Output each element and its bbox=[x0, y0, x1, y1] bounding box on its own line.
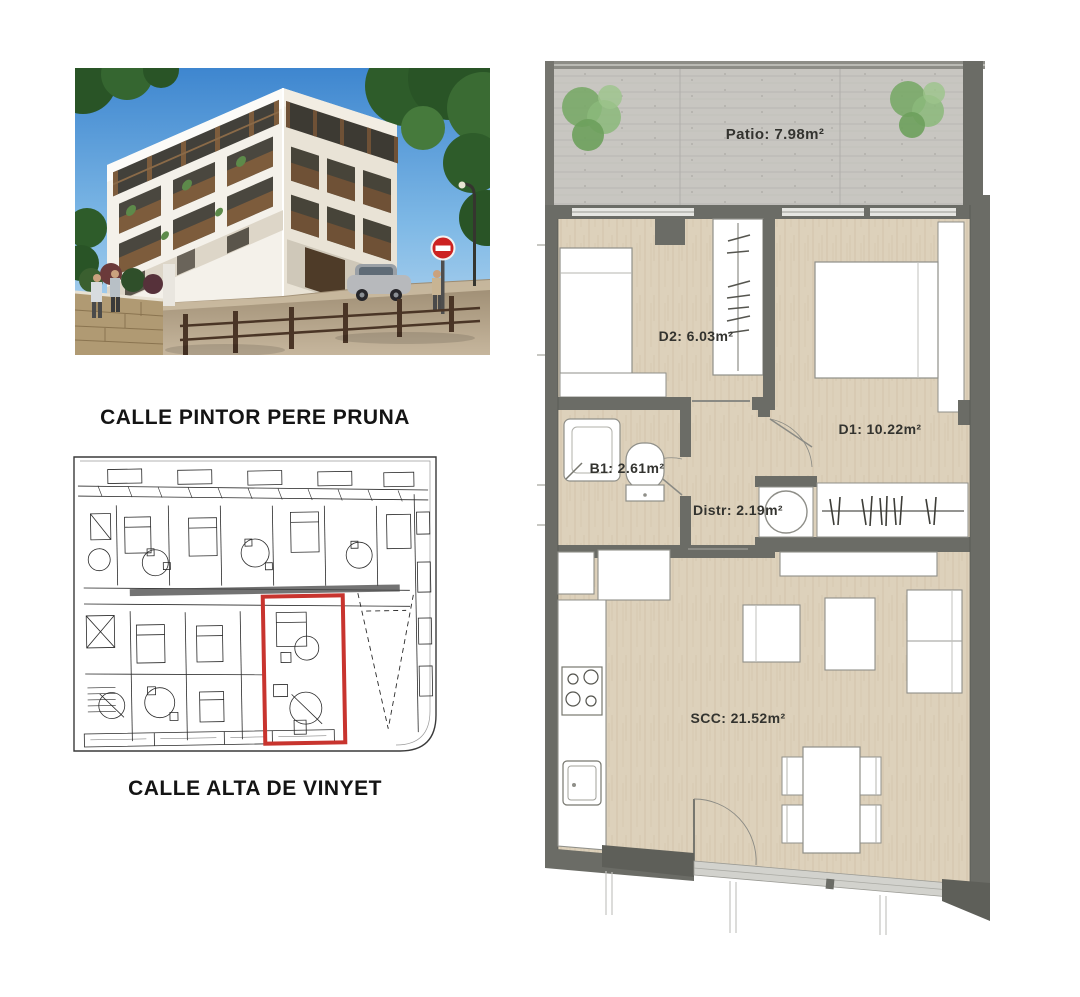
wall-ticks bbox=[537, 245, 545, 525]
floor-plan: Patio: 7.98m² D2: 6.03m² bbox=[530, 55, 1000, 935]
kitchen bbox=[558, 600, 606, 850]
d1-bed bbox=[815, 262, 938, 378]
room-label-patio: Patio: 7.98m² bbox=[726, 126, 825, 143]
site-plan bbox=[70, 453, 440, 765]
room-label-scc: SCC: 21.52m² bbox=[690, 710, 785, 726]
d1-wardrobe bbox=[817, 483, 968, 537]
building-photo bbox=[75, 68, 490, 355]
street-name-bottom: CALLE ALTA DE VINYET bbox=[70, 777, 440, 801]
kitchen-counter bbox=[558, 600, 606, 850]
room-label-distr: Distr: 2.19m² bbox=[693, 502, 783, 518]
street-name-top: CALLE PINTOR PERE PRUNA bbox=[70, 406, 440, 430]
sideboard bbox=[780, 552, 937, 576]
room-label-d1: D1: 10.22m² bbox=[839, 421, 922, 437]
d1-headboard bbox=[938, 222, 964, 412]
pillar bbox=[655, 219, 685, 245]
d2-desk bbox=[560, 373, 666, 397]
dining-table bbox=[803, 747, 860, 853]
flyer-page: CALLE PINTOR PERE PRUNA bbox=[0, 0, 1080, 997]
stove bbox=[562, 667, 602, 715]
armchair bbox=[743, 605, 800, 662]
entry-closet-large bbox=[598, 550, 670, 600]
coffee-table bbox=[825, 598, 875, 670]
room-label-d2: D2: 6.03m² bbox=[659, 328, 734, 344]
room-label-b1: B1: 2.61m² bbox=[590, 460, 665, 476]
entry-closet-small bbox=[558, 552, 594, 594]
